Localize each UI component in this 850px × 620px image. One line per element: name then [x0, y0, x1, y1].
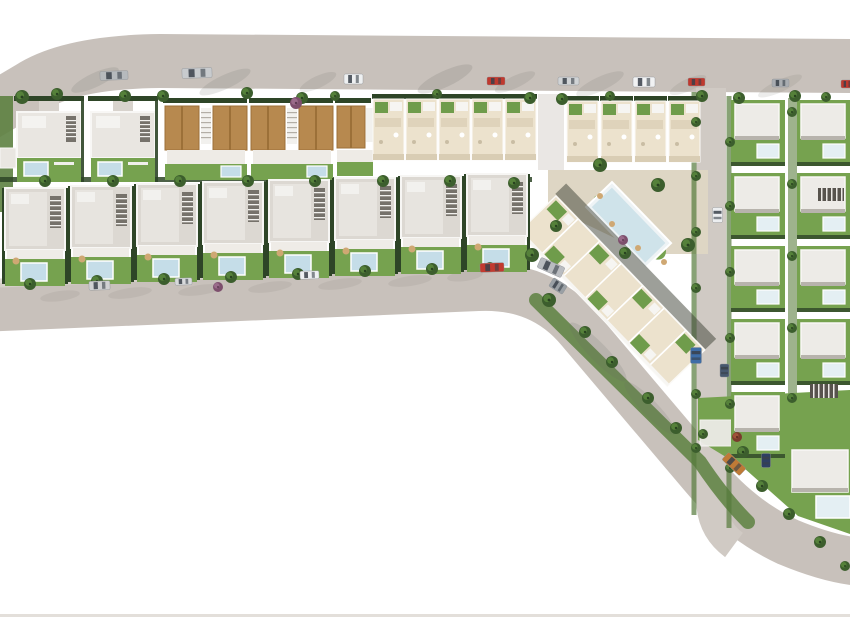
tree-palm — [24, 278, 36, 290]
tree-palm — [814, 536, 826, 548]
tree-palm — [174, 175, 186, 187]
tree-palm — [787, 107, 797, 117]
apartment-a-1 — [372, 94, 405, 160]
villa-east1-3 — [731, 246, 785, 312]
tree-palm — [158, 273, 170, 285]
tree-palm — [787, 323, 797, 333]
tree-palm — [542, 293, 556, 307]
apartment-b-4 — [668, 96, 701, 162]
pergola-slat-line — [831, 188, 833, 201]
pool-parasol — [609, 221, 615, 227]
tree-palm — [725, 399, 735, 409]
tree-palm — [698, 429, 708, 439]
pergola-slat-line — [828, 384, 830, 398]
villa-east1-1 — [731, 100, 785, 166]
car-darkblue — [762, 454, 771, 468]
bottom-right-villa — [792, 450, 848, 492]
pergola-slat-line — [813, 384, 815, 398]
tree-palm — [309, 175, 321, 187]
tree-palm — [691, 283, 701, 293]
villa-row2-1 — [2, 188, 68, 286]
pool-parasol — [635, 245, 641, 251]
car-white — [713, 208, 723, 223]
tree-palm — [787, 393, 797, 403]
car-silver — [100, 71, 128, 81]
tree-palm — [840, 561, 850, 571]
tree-palm — [725, 137, 735, 147]
apartment-a-3 — [438, 94, 471, 160]
tree-palm — [670, 422, 682, 434]
duplex-brown-1 — [163, 98, 247, 180]
car-red — [841, 80, 850, 88]
villa-east2-4 — [797, 319, 850, 385]
tree-palm — [789, 90, 801, 102]
apartment-b-1 — [566, 96, 599, 162]
tree-palm — [157, 90, 169, 102]
tree-palm — [606, 356, 618, 368]
tree-palm — [524, 92, 536, 104]
tree-palm — [691, 171, 701, 181]
tree-palm — [225, 271, 237, 283]
van-white — [300, 271, 319, 280]
apartment-a-4 — [471, 94, 504, 160]
apartment-a-5 — [504, 94, 537, 160]
car-blue — [691, 348, 702, 364]
tree-palm — [787, 251, 797, 261]
villa-row2-8 — [464, 174, 530, 272]
pergola-slat-line — [836, 188, 838, 201]
site-plan-svg — [0, 0, 850, 620]
tree-palm — [783, 508, 795, 520]
villa-row2-7 — [398, 176, 464, 274]
villa-east1-2 — [731, 173, 785, 239]
tree-palm — [426, 263, 438, 275]
tree-palm — [821, 92, 831, 102]
pergola-slat-line — [841, 188, 843, 201]
tree-palm — [593, 158, 607, 172]
villa-east2-1 — [797, 100, 850, 166]
car-red — [688, 78, 705, 86]
tree-red — [732, 432, 742, 442]
tree-palm — [525, 248, 539, 262]
tree-palm — [605, 91, 615, 101]
pergola-slat-line — [821, 188, 823, 201]
tree-purple — [618, 235, 628, 245]
tree-palm — [696, 90, 708, 102]
tree-purple — [290, 97, 302, 109]
pergola-slat-line — [833, 384, 835, 398]
tree-palm — [756, 480, 768, 492]
tree-palm — [330, 91, 340, 101]
car-silver — [182, 67, 212, 78]
villa-row2-3 — [134, 184, 200, 282]
duplex-brown-2 — [249, 98, 333, 180]
pergola-slat-line — [823, 384, 825, 398]
tree-palm — [377, 175, 389, 187]
car-red — [480, 263, 504, 273]
pergola-slat-line — [818, 384, 820, 398]
tree-palm — [15, 90, 29, 104]
tree-purple — [213, 282, 223, 292]
right-cols-hedge — [788, 98, 797, 394]
villa-row2-2 — [68, 186, 134, 284]
bottom-edge-strip — [0, 614, 850, 617]
tree-palm — [725, 333, 735, 343]
tree-palm — [725, 201, 735, 211]
tree-palm — [242, 175, 254, 187]
bottom-right-villa-edge — [792, 488, 848, 492]
tree-palm — [550, 220, 562, 232]
villa-row2-6 — [332, 178, 398, 276]
tree-palm — [556, 93, 568, 105]
left-shed — [0, 148, 16, 168]
masterplan-render — [0, 0, 850, 620]
car-silver — [558, 77, 579, 85]
car-red — [487, 77, 505, 85]
tree-palm — [733, 92, 745, 104]
tree-palm — [432, 89, 442, 99]
car-darkgray — [720, 364, 729, 377]
tree-palm — [444, 175, 456, 187]
apartment-a-2 — [405, 94, 438, 160]
pool-parasol — [597, 193, 603, 199]
tree-palm — [241, 87, 253, 99]
tree-palm — [737, 446, 749, 458]
van-gray — [89, 281, 110, 291]
tree-palm — [39, 175, 51, 187]
villa-row2-5 — [266, 180, 332, 278]
bottom-right-pool — [816, 496, 850, 518]
villa-east1-4 — [731, 319, 785, 385]
tree-palm — [642, 392, 654, 404]
tree-palm — [107, 175, 119, 187]
tree-palm — [787, 179, 797, 189]
tree-palm — [691, 117, 701, 127]
tree-palm — [725, 267, 735, 277]
tree-palm — [119, 90, 131, 102]
mid-gap-path — [538, 94, 564, 170]
tree-palm — [691, 227, 701, 237]
tree-palm — [651, 178, 665, 192]
tree-palm — [51, 88, 63, 100]
tree-palm — [691, 389, 701, 399]
tree-palm — [579, 326, 591, 338]
apartment-b-3 — [634, 96, 667, 162]
tree-palm — [681, 238, 695, 252]
villa-row2-4 — [200, 182, 266, 280]
tree-palm — [359, 265, 371, 277]
villa-east2-2 — [797, 173, 850, 239]
pergola-slat-line — [826, 188, 828, 201]
van-white — [344, 74, 363, 84]
truck-white — [633, 77, 655, 87]
apartment-b-2 — [600, 96, 633, 162]
tree-palm — [619, 247, 631, 259]
car-silver — [175, 278, 192, 286]
duplex-brown-3 — [335, 98, 374, 176]
tree-palm — [691, 443, 701, 453]
car-gray — [772, 79, 789, 87]
pool-parasol — [661, 259, 667, 265]
tree-palm — [508, 177, 520, 189]
villa-east2-3 — [797, 246, 850, 312]
